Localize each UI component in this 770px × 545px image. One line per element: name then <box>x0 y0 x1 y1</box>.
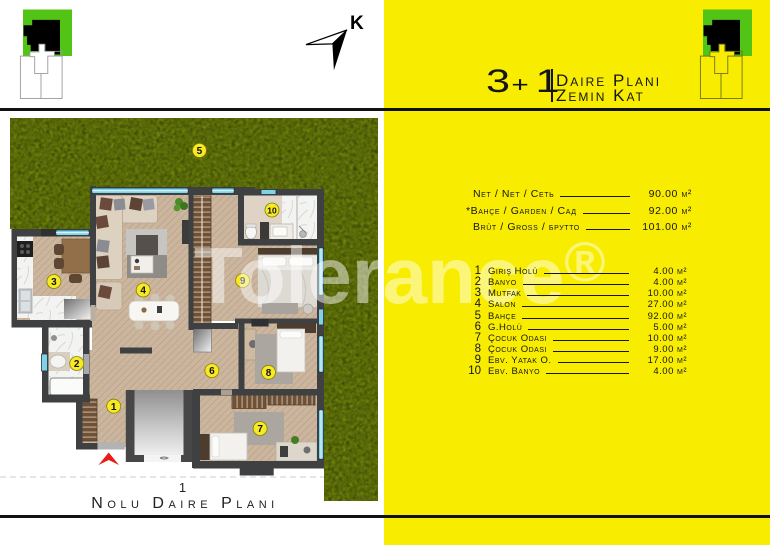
svg-text:8: 8 <box>266 368 272 379</box>
svg-text:5: 5 <box>197 146 203 157</box>
svg-text:K: K <box>350 13 364 34</box>
svg-text:3: 3 <box>51 277 57 288</box>
svg-text:2: 2 <box>74 359 80 370</box>
svg-text:1: 1 <box>111 402 117 413</box>
svg-text:6: 6 <box>209 366 215 377</box>
svg-text:4: 4 <box>140 286 146 297</box>
svg-text:10: 10 <box>267 206 277 216</box>
svg-text:7: 7 <box>257 424 263 435</box>
